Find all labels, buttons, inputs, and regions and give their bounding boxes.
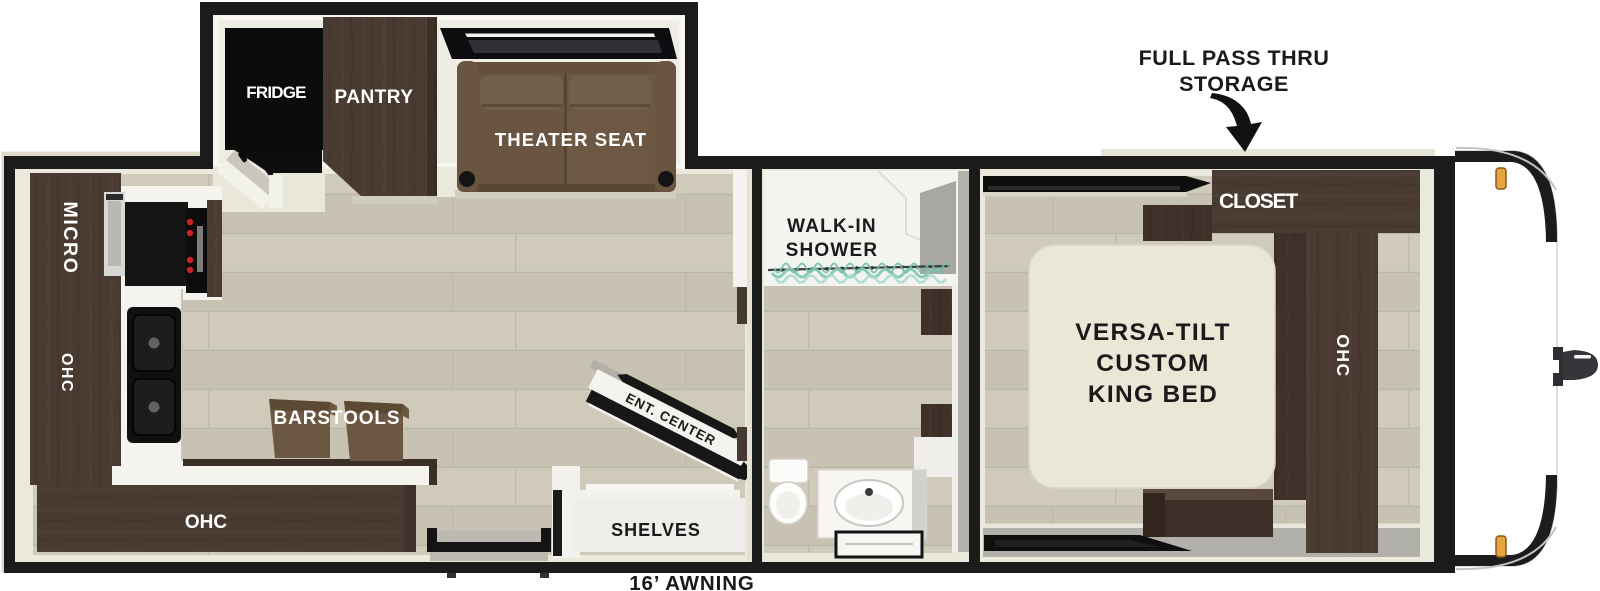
- svg-text:SHOWER: SHOWER: [786, 240, 879, 261]
- svg-text:MICRO: MICRO: [59, 202, 81, 275]
- svg-text:OHC: OHC: [185, 512, 228, 533]
- svg-text:VERSA-TILT: VERSA-TILT: [1075, 319, 1230, 346]
- svg-text:CUSTOM: CUSTOM: [1096, 350, 1210, 377]
- svg-text:BARSTOOLS: BARSTOOLS: [273, 408, 400, 429]
- svg-text:CLOSET: CLOSET: [1219, 190, 1298, 213]
- svg-text:FRIDGE: FRIDGE: [246, 83, 306, 102]
- svg-text:STORAGE: STORAGE: [1179, 72, 1289, 96]
- svg-text:PANTRY: PANTRY: [335, 87, 414, 108]
- svg-text:SHELVES: SHELVES: [611, 520, 701, 540]
- svg-text:OHC: OHC: [58, 353, 75, 393]
- svg-text:WALK-IN: WALK-IN: [787, 216, 877, 237]
- svg-text:KING BED: KING BED: [1088, 381, 1218, 408]
- svg-text:THEATER SEAT: THEATER SEAT: [495, 129, 647, 150]
- svg-text:FULL PASS THRU: FULL PASS THRU: [1139, 46, 1330, 70]
- svg-text:OHC: OHC: [1333, 334, 1353, 377]
- svg-text:16’ AWNING: 16’ AWNING: [629, 572, 755, 591]
